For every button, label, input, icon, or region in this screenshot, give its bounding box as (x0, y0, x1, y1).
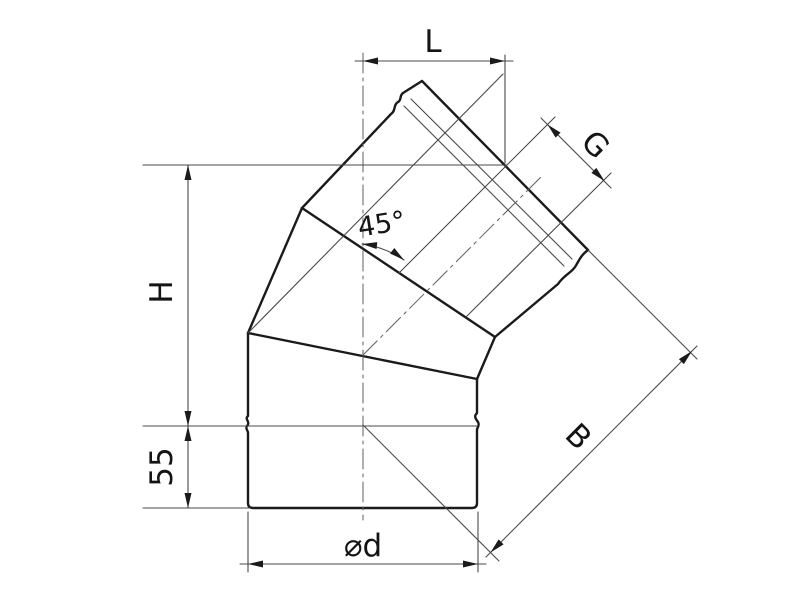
middle-segment-left-edge (248, 208, 302, 333)
inner-wall-line-mid (399, 117, 555, 273)
extension-lines (143, 55, 697, 572)
arrow-55-top (185, 426, 192, 441)
arrow-arc-right (390, 248, 406, 263)
label-angle-45: 45° (356, 206, 408, 244)
arrowheads (185, 58, 695, 568)
inclined-centerline (363, 174, 544, 355)
elbow-inner-lines (143, 74, 611, 426)
centerlines (363, 53, 544, 520)
top-pipe-left-edge (302, 81, 422, 208)
inner-wall-line-left (248, 74, 503, 333)
label-G: G (574, 124, 616, 166)
ext-b-upper (588, 250, 697, 359)
arrow-H-top (185, 165, 192, 180)
middle-segment-right-edge (477, 337, 495, 379)
socket-bead-line-2 (404, 106, 564, 266)
elbow-45-diagram: L G H 55 ⌀d B 45° (0, 0, 800, 600)
arrow-H-bottom (185, 411, 192, 426)
ext-b-lower (363, 425, 499, 561)
label-diameter-d: ⌀d (344, 528, 382, 564)
arrow-55-bottom (185, 493, 192, 508)
inner-wall-line-right (466, 173, 611, 317)
label-H: H (144, 280, 180, 303)
dimension-lines (188, 61, 697, 564)
arrow-d-left (248, 561, 263, 568)
label-55: 55 (144, 447, 180, 486)
arrow-L-right (490, 58, 505, 65)
arrow-L-left (363, 58, 378, 65)
label-L: L (424, 24, 442, 60)
dim-line-B (486, 346, 697, 557)
arrow-d-right (463, 561, 478, 568)
elbow-outline (246, 81, 588, 508)
technical-drawing-canvas: L G H 55 ⌀d B 45° (0, 0, 800, 600)
top-pipe-right-edge (495, 250, 588, 337)
